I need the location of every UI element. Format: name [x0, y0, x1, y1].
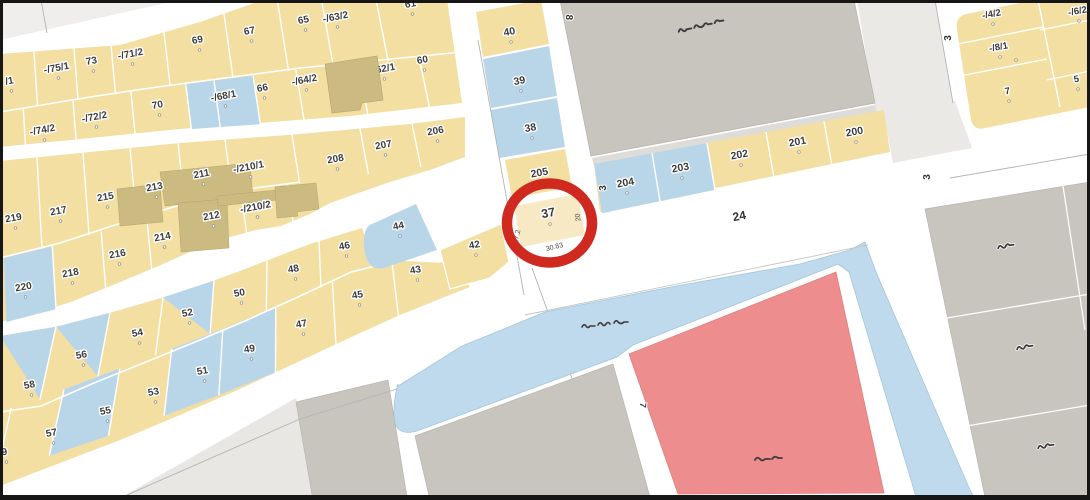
svg-text:3: 3	[598, 185, 609, 191]
svg-text:40: 40	[503, 25, 517, 39]
svg-text:39: 39	[513, 74, 527, 88]
svg-text:38: 38	[524, 121, 538, 135]
svg-text:20: 20	[574, 213, 582, 222]
svg-text:3: 3	[943, 35, 954, 41]
svg-text:7: 7	[638, 402, 648, 408]
svg-text:37: 37	[540, 205, 556, 221]
svg-text:3: 3	[922, 174, 933, 180]
